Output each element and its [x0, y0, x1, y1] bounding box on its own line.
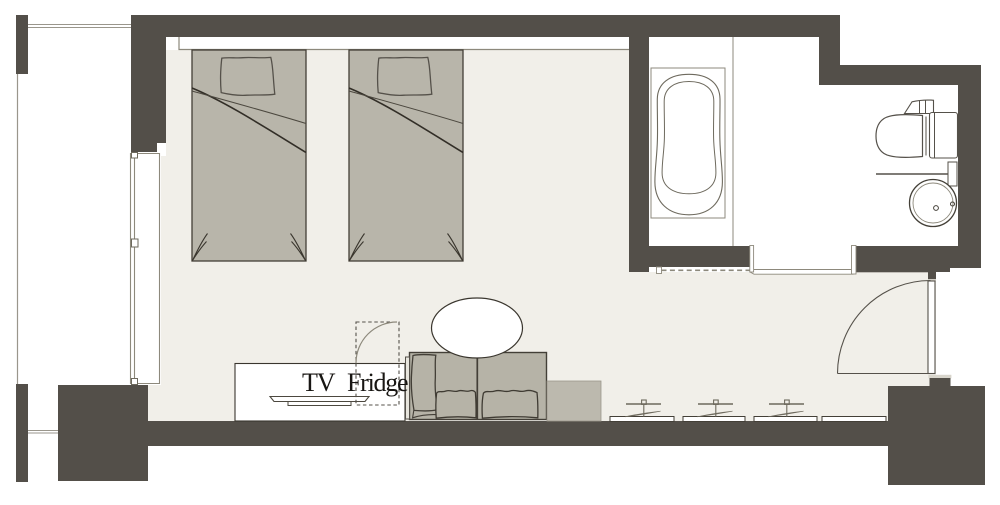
- svg-text:TV: TV: [302, 368, 336, 397]
- svg-text:Fridge: Fridge: [347, 368, 409, 397]
